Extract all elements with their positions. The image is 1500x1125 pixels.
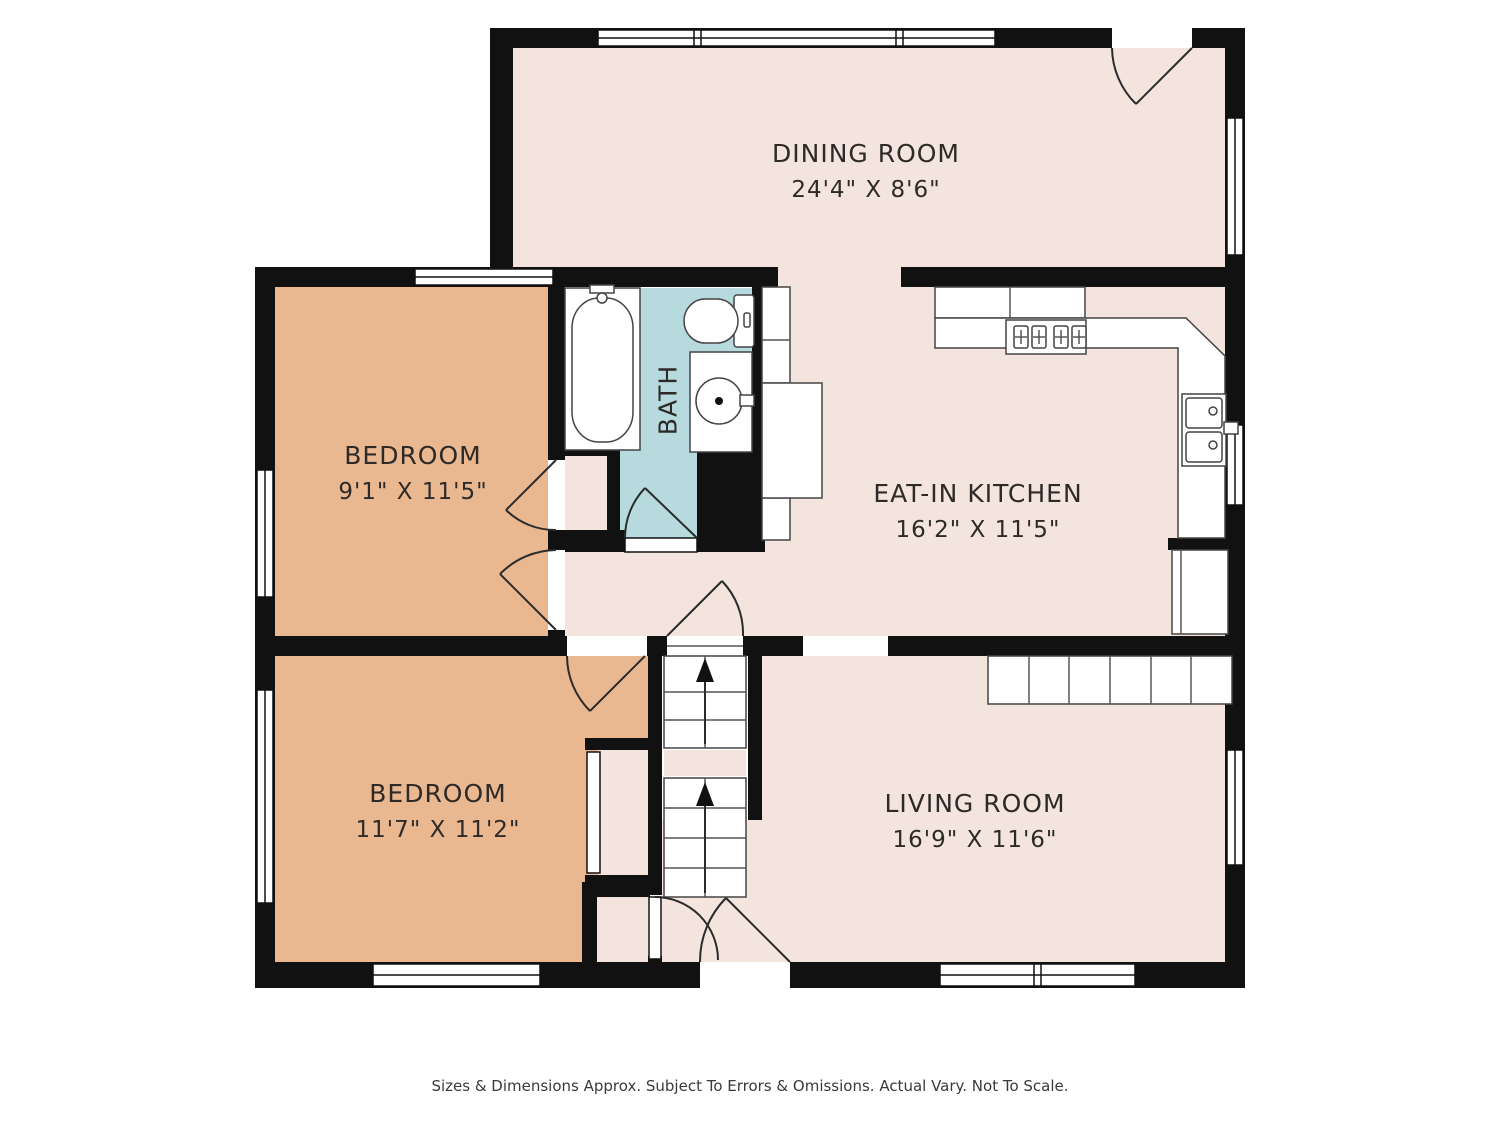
kitchen-stove [1006, 320, 1086, 354]
kitchen-name: EAT-IN KITCHEN [873, 478, 1082, 509]
room-label-bedroom-top: BEDROOM 9'1" X 11'5" [338, 440, 487, 507]
dining-room-dims: 24'4" X 8'6" [772, 176, 960, 205]
bathtub [565, 285, 640, 450]
room-label-bedroom-bottom: BEDROOM 11'7" X 11'2" [356, 778, 521, 845]
kitchen-upper-cabinets [935, 287, 1085, 318]
kitchen-pantry-unit [1172, 550, 1228, 634]
living-room-closets [988, 656, 1232, 704]
bedroom-bottom-dims: 11'7" X 11'2" [356, 816, 521, 845]
bathroom-vanity-sink [690, 352, 754, 452]
bedroom-top-name: BEDROOM [338, 440, 487, 471]
dining-room-name: DINING ROOM [772, 138, 960, 169]
toilet [684, 295, 754, 347]
disclaimer-text: Sizes & Dimensions Approx. Subject To Er… [431, 1077, 1068, 1095]
floorplan-canvas [0, 0, 1500, 1125]
room-label-kitchen: EAT-IN KITCHEN 16'2" X 11'5" [873, 478, 1082, 545]
staircase [664, 656, 746, 897]
room-label-dining: DINING ROOM 24'4" X 8'6" [772, 138, 960, 205]
bedroom-bottom-name: BEDROOM [356, 778, 521, 809]
room-label-bath: BATH [654, 365, 683, 435]
floorplan-page: DINING ROOM 24'4" X 8'6" BEDROOM 9'1" X … [0, 0, 1500, 1125]
bedroom-top-dims: 9'1" X 11'5" [338, 478, 487, 507]
room-label-living: LIVING ROOM 16'9" X 11'6" [884, 788, 1065, 855]
living-room-name: LIVING ROOM [884, 788, 1065, 819]
living-room-dims: 16'9" X 11'6" [884, 826, 1065, 855]
kitchen-dims: 16'2" X 11'5" [873, 516, 1082, 545]
bath-name: BATH [654, 365, 683, 435]
